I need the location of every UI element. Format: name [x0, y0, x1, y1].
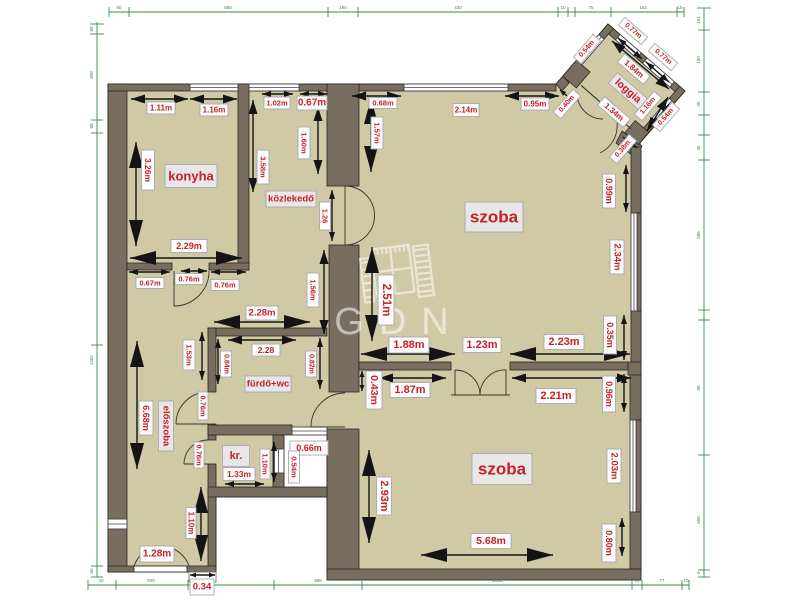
svg-text:1.11m: 1.11m: [150, 104, 172, 113]
svg-text:0.76m: 0.76m: [199, 395, 208, 417]
svg-text:3.26m: 3.26m: [143, 158, 153, 183]
svg-text:60: 60: [89, 26, 94, 32]
svg-text:kr.: kr.: [230, 450, 243, 462]
svg-text:1.28m: 1.28m: [143, 549, 171, 560]
svg-text:600: 600: [696, 516, 701, 524]
svg-text:0.96m: 0.96m: [604, 381, 614, 407]
svg-text:1.56m: 1.56m: [309, 279, 318, 301]
svg-text:190: 190: [339, 5, 347, 10]
svg-text:0.66m: 0.66m: [296, 443, 322, 453]
svg-text:77: 77: [659, 578, 665, 583]
svg-text:2.14m: 2.14m: [455, 106, 478, 115]
svg-text:15: 15: [677, 5, 683, 10]
svg-text:0.34: 0.34: [193, 582, 212, 593]
svg-text:0.95m: 0.95m: [524, 100, 547, 109]
svg-text:88: 88: [696, 385, 701, 391]
svg-text:40: 40: [98, 578, 104, 583]
svg-text:0.67m: 0.67m: [298, 98, 326, 109]
svg-text:1.16m: 1.16m: [203, 106, 226, 115]
svg-text:430: 430: [454, 5, 462, 10]
svg-text:75: 75: [588, 5, 594, 10]
svg-text:98: 98: [696, 101, 701, 107]
svg-text:2.29m: 2.29m: [176, 241, 202, 251]
svg-text:1.53m: 1.53m: [185, 344, 194, 366]
svg-text:2.23m: 2.23m: [548, 336, 579, 348]
svg-text:1.60m: 1.60m: [300, 132, 309, 154]
svg-text:1.57m: 1.57m: [373, 122, 382, 144]
svg-text:0.67m: 0.67m: [139, 279, 161, 288]
svg-text:60: 60: [89, 568, 94, 574]
svg-text:2.28: 2.28: [258, 345, 275, 355]
svg-text:1.10m: 1.10m: [187, 512, 196, 535]
svg-text:2.34m: 2.34m: [612, 244, 623, 271]
svg-text:45: 45: [696, 145, 701, 151]
svg-text:163: 163: [639, 5, 647, 10]
svg-text:0.76m: 0.76m: [195, 444, 204, 466]
svg-text:2.93m: 2.93m: [378, 480, 390, 511]
svg-text:0.54m: 0.54m: [290, 456, 299, 478]
svg-text:6.68m: 6.68m: [141, 405, 151, 431]
svg-text:1.23m: 1.23m: [466, 339, 497, 351]
svg-text:101: 101: [696, 16, 701, 24]
svg-text:1.10m: 1.10m: [261, 453, 270, 475]
svg-text:0.84m: 0.84m: [223, 354, 230, 374]
svg-text:fürdő+wc: fürdő+wc: [247, 379, 290, 390]
svg-text:920: 920: [147, 578, 155, 583]
svg-text:0.82m: 0.82m: [308, 354, 315, 374]
svg-text:10: 10: [634, 578, 640, 583]
svg-text:1.26: 1.26: [321, 209, 330, 224]
svg-text:0.76m: 0.76m: [214, 281, 236, 290]
svg-text:0.76m: 0.76m: [178, 275, 200, 284]
svg-text:0.43m: 0.43m: [368, 375, 380, 405]
svg-text:szoba: szoba: [478, 460, 527, 479]
svg-text:előszoba: előszoba: [161, 406, 172, 447]
svg-text:5.68m: 5.68m: [476, 535, 506, 547]
svg-text:0.80m: 0.80m: [604, 530, 614, 556]
svg-text:686: 686: [696, 231, 701, 239]
svg-text:10: 10: [560, 5, 566, 10]
svg-text:0.35m: 0.35m: [605, 322, 615, 348]
svg-text:1.33m: 1.33m: [227, 469, 252, 479]
svg-text:2.21m: 2.21m: [540, 390, 571, 402]
svg-text:2.28m: 2.28m: [249, 308, 276, 319]
svg-text:konyha: konyha: [168, 169, 214, 184]
svg-text:2.03m: 2.03m: [609, 453, 620, 480]
svg-text:szoba: szoba: [470, 208, 519, 227]
svg-text:1287: 1287: [89, 354, 94, 365]
svg-text:180: 180: [696, 56, 701, 64]
svg-text:608: 608: [89, 71, 94, 79]
svg-text:880: 880: [224, 5, 232, 10]
svg-text:1.02m: 1.02m: [266, 99, 288, 108]
svg-text:2.51m: 2.51m: [380, 284, 392, 317]
svg-text:3.58m: 3.58m: [259, 156, 268, 178]
svg-text:1.87m: 1.87m: [394, 384, 425, 396]
svg-text:88: 88: [89, 123, 94, 129]
svg-text:60: 60: [116, 5, 122, 10]
svg-text:10: 10: [683, 578, 689, 583]
svg-text:közlekedő: közlekedő: [268, 194, 314, 205]
svg-text:988: 988: [314, 578, 322, 583]
svg-text:0.68m: 0.68m: [372, 99, 394, 108]
svg-text:4850: 4850: [492, 578, 503, 583]
svg-text:1.88m: 1.88m: [393, 339, 424, 351]
svg-text:0.99m: 0.99m: [604, 178, 614, 204]
